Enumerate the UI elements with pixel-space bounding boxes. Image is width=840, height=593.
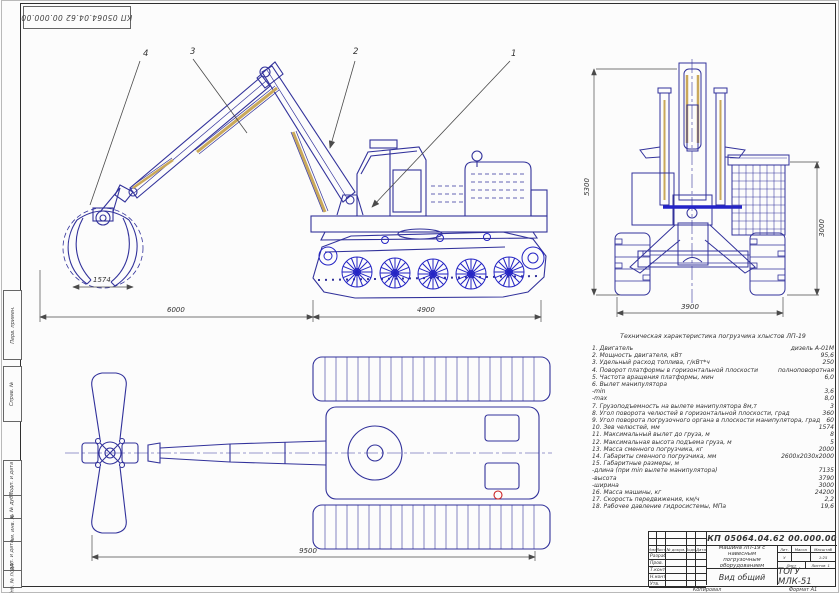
spec-label: -max: [592, 395, 607, 402]
drawing-sheet: КП 05064.04.62 00.000.00 Перв. примен. С…: [0, 0, 840, 593]
title-block-doc-type: Вид общий: [707, 569, 777, 585]
corner-stamp-number: КП 05064.04.62 00.000.00: [21, 13, 132, 22]
spec-value: 3000: [819, 482, 834, 489]
spec-value: 2000: [819, 446, 834, 453]
spec-label: -min: [592, 388, 605, 395]
title-block-name-area: Машина ЛП-19 с навесным погрузочным обор…: [706, 546, 777, 585]
spec-row: 9. Угол поворота погрузочного органа в п…: [592, 417, 834, 424]
spec-value: 60: [826, 417, 834, 424]
format-label: Формат А1: [772, 587, 834, 593]
spec-row: 11. Максимальный вылет до груза, м 8: [592, 431, 834, 438]
spec-label: 3. Удельный расход топлива, г/кВт*ч: [592, 359, 710, 366]
spec-label: -высота: [592, 475, 617, 482]
spec-row: 14. Габариты сменного погрузчика, мм 260…: [592, 453, 834, 460]
spec-value: 2600х2030х2000: [781, 453, 834, 460]
title-block-revision-table: Изм. Лист № докум. Подп. Дата Разраб.: [649, 532, 706, 585]
spec-row: 13. Масса сменного погрузчика, кг 2000: [592, 446, 834, 453]
spec-row: 16. Масса машины, кг 24200: [592, 489, 834, 496]
spec-label: 15. Габаритные размеры, м: [592, 460, 679, 467]
signature-rows: Разраб. Пров. Т.контр.: [649, 553, 706, 588]
dim-front-height: 5300: [583, 178, 591, 196]
spec-value: 19,6: [821, 503, 834, 510]
spec-row: 2. Мощность двигателя, кВт 95,6: [592, 352, 834, 359]
callout-1: 1: [511, 49, 516, 59]
dim-front-basket: 3000: [818, 219, 826, 237]
signature-row: Н.контр.: [649, 574, 706, 581]
callout-2: 2: [353, 47, 358, 57]
spec-row: 15. Габаритные размеры, м: [592, 460, 834, 467]
spec-value: 8: [830, 431, 834, 438]
front-dimensions: 5300 3000 3900: [583, 69, 826, 317]
spec-value: 250: [823, 359, 834, 366]
spec-label: 8. Угол поворота челюстей в горизонтальн…: [592, 410, 790, 417]
title-block-right-area: Лит. Масса Масштаб У 1:25 Лист Листов 1 …: [777, 546, 836, 585]
callout-4: 4: [143, 49, 148, 59]
callout-3: 3: [190, 47, 195, 57]
signature-row: Т.контр.: [649, 567, 706, 574]
spec-label: -длина (при min вылете манипулятора): [592, 467, 717, 474]
title-block: КП 05064.04.62 00.000.00 Изм. Лист № док…: [648, 531, 836, 587]
front-view-drawing: 5300 3000 3900: [580, 55, 835, 330]
plan-view-drawing: 9500: [30, 345, 570, 570]
spec-label: 9. Угол поворота погрузочного органа в п…: [592, 417, 820, 424]
spec-row: 10. Зев челюстей, мм 1574: [592, 424, 834, 431]
spec-value: 95,6: [821, 352, 834, 359]
spec-row: -max 8,0: [592, 395, 834, 402]
spec-label: 2. Мощность двигателя, кВт: [592, 352, 682, 359]
side-body: [311, 140, 547, 240]
spec-label: 12. Максимальная высота подъема груза, м: [592, 439, 732, 446]
spec-row: 4. Поворот платформы в горизонтальной пл…: [592, 367, 834, 374]
spec-value: полноповоротная: [778, 367, 834, 374]
spec-row: 12. Максимальная высота подъема груза, м…: [592, 439, 834, 446]
spec-label: 7. Грузоподъемность на вылете манипулято…: [592, 403, 757, 410]
spec-value: 1574: [819, 424, 834, 431]
spec-row: -длина (при min вылете манипулятора) 713…: [592, 467, 834, 474]
spec-row: 8. Угол поворота челюстей в горизонтальн…: [592, 410, 834, 417]
side-view-drawing: 4 3 2 1 1574 6000 4900: [25, 40, 575, 330]
spec-value: 6,0: [824, 374, 834, 381]
spec-label: 18. Рабочее давление гидросистемы, МПа: [592, 503, 726, 510]
spec-value: 5: [830, 439, 834, 446]
spec-label: 5. Частота вращения платформы, мин: [592, 374, 714, 381]
spec-label: 4. Поворот платформы в горизонтальной пл…: [592, 367, 758, 374]
spec-row: 18. Рабочее давление гидросистемы, МПа 1…: [592, 503, 834, 510]
side-boom: [115, 62, 363, 215]
dim-grapple-jaw: 1574: [93, 276, 111, 284]
front-basket: [728, 155, 789, 235]
tech-characteristics-title: Техническая характеристика погрузчика хл…: [592, 333, 834, 340]
spec-value: 3790: [819, 475, 834, 482]
dim-side-left: 6000: [167, 306, 185, 314]
spec-value: 360: [823, 410, 834, 417]
spec-label: 6. Вылет манипулятора: [592, 381, 667, 388]
revision-header-row: Изм. Лист № докум. Подп. Дата: [649, 546, 706, 553]
dim-plan-length: 9500: [299, 547, 317, 555]
dim-side-right: 4900: [417, 306, 435, 314]
signature-row: Пров.: [649, 560, 706, 567]
revision-row-blank: [649, 532, 706, 539]
tech-characteristics-list: 1. Двигатель дизель А-01М 2. Мощность дв…: [592, 345, 834, 511]
copied-label: Копировал: [662, 587, 752, 593]
spec-row: -min 3,6: [592, 388, 834, 395]
spec-value: 3: [830, 403, 834, 410]
spec-label: 14. Габариты сменного погрузчика, мм: [592, 453, 716, 460]
spec-label: 16. Масса машины, кг: [592, 489, 661, 496]
revision-row-blank: [649, 539, 706, 546]
corner-stamp: КП 05064.04.62 00.000.00: [23, 6, 131, 29]
lit-mass-scale-values: У 1:25: [778, 553, 836, 562]
spec-label: 1. Двигатель: [592, 345, 633, 352]
spec-value: 8,0: [824, 395, 834, 402]
side-grapple: [63, 188, 143, 288]
margin-box-perv-primen: Перв. примен.: [3, 290, 22, 360]
spec-value: 3,6: [824, 388, 834, 395]
spec-row: 5. Частота вращения платформы, мин 6,0: [592, 374, 834, 381]
spec-value: 2,2: [824, 496, 834, 503]
side-cylinders: [132, 86, 328, 212]
spec-row: 7. Грузоподъемность на вылете манипулято…: [592, 403, 834, 410]
spec-row: -высота 3790: [592, 475, 834, 482]
margin-box-inv-podl: Инв. № подл.: [3, 570, 22, 588]
side-road-wheels: [319, 234, 544, 290]
spec-label: 10. Зев челюстей, мм: [592, 424, 660, 431]
spec-label: 13. Масса сменного погрузчика, кг: [592, 446, 703, 453]
title-block-name: Машина ЛП-19 с навесным погрузочным обор…: [707, 546, 777, 569]
spec-row: -ширина 3000: [592, 482, 834, 489]
tech-characteristics: Техническая характеристика погрузчика хл…: [592, 333, 834, 511]
spec-label: 17. Скорость передвижения, км/ч: [592, 496, 699, 503]
spec-label: -ширина: [592, 482, 619, 489]
margin-box-sprav-no: Справ. №: [3, 366, 22, 422]
spec-row: 17. Скорость передвижения, км/ч 2,2: [592, 496, 834, 503]
title-block-org: ТОГУ МЛК-51: [778, 569, 836, 585]
spec-label: 11. Максимальный вылет до груза, м: [592, 431, 710, 438]
dim-front-width: 3900: [681, 303, 699, 311]
lit-mass-scale-headers: Лит. Масса Масштаб: [778, 546, 836, 553]
spec-row: 1. Двигатель дизель А-01М: [592, 345, 834, 352]
front-machine: [615, 63, 785, 295]
spec-row: 3. Удельный расход топлива, г/кВт*ч 250: [592, 359, 834, 366]
signature-row: Разраб.: [649, 553, 706, 560]
spec-row: 6. Вылет манипулятора: [592, 381, 834, 388]
spec-value: дизель А-01М: [791, 345, 834, 352]
spec-value: 24200: [815, 489, 834, 496]
spec-value: 7135: [819, 467, 834, 474]
